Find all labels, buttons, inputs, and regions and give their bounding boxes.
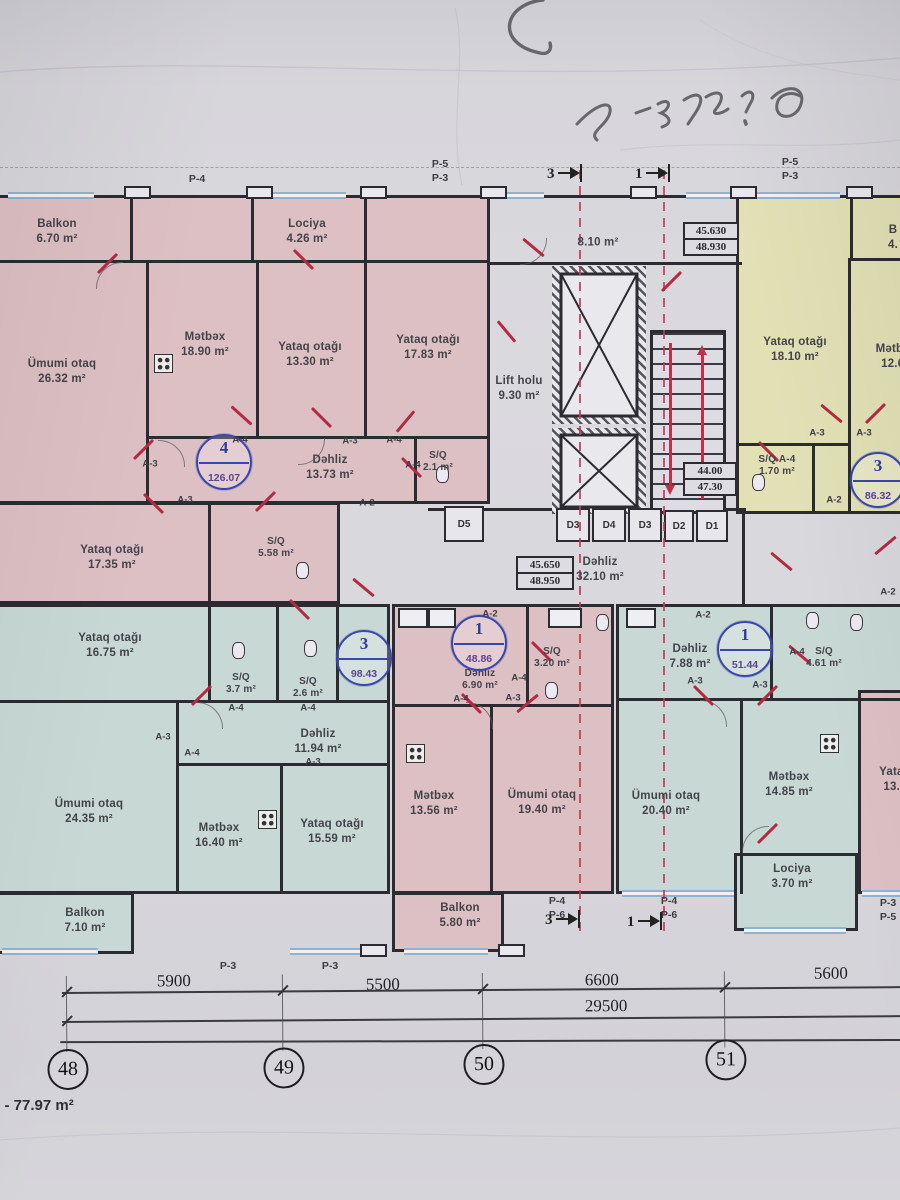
grid-number: 49 [274, 1056, 294, 1079]
dimension-line [60, 1039, 900, 1043]
grid-bubble-51: 51 [705, 1039, 746, 1080]
dimension-block: 5900 5500 6600 5600 29500 48 49 50 51 [0, 0, 900, 1200]
grid-line [66, 976, 68, 1052]
grid-line [282, 974, 284, 1050]
dim-6600: 6600 [585, 970, 619, 990]
grid-bubble-49: 49 [263, 1047, 304, 1088]
grid-number: 51 [716, 1048, 736, 1071]
dim-5900: 5900 [157, 971, 191, 991]
dimension-line [62, 1015, 900, 1022]
grid-number: 48 [58, 1058, 78, 1081]
scanned-floor-plan: D5 D3 D4 D3 D2 D1 45.630 48.930 44.00 47… [0, 0, 900, 1200]
grid-bubble-50: 50 [463, 1044, 504, 1085]
dim-5500: 5500 [366, 975, 400, 995]
handwritten-note [0, 0, 900, 170]
grid-line [724, 971, 726, 1047]
grid-number: 50 [474, 1053, 494, 1076]
grid-line [482, 973, 484, 1049]
corner-area-note: ə - 77.97 m² [0, 1097, 74, 1114]
grid-bubble-48: 48 [47, 1049, 88, 1090]
dim-total-29500: 29500 [585, 996, 628, 1016]
dim-5600: 5600 [814, 963, 848, 983]
